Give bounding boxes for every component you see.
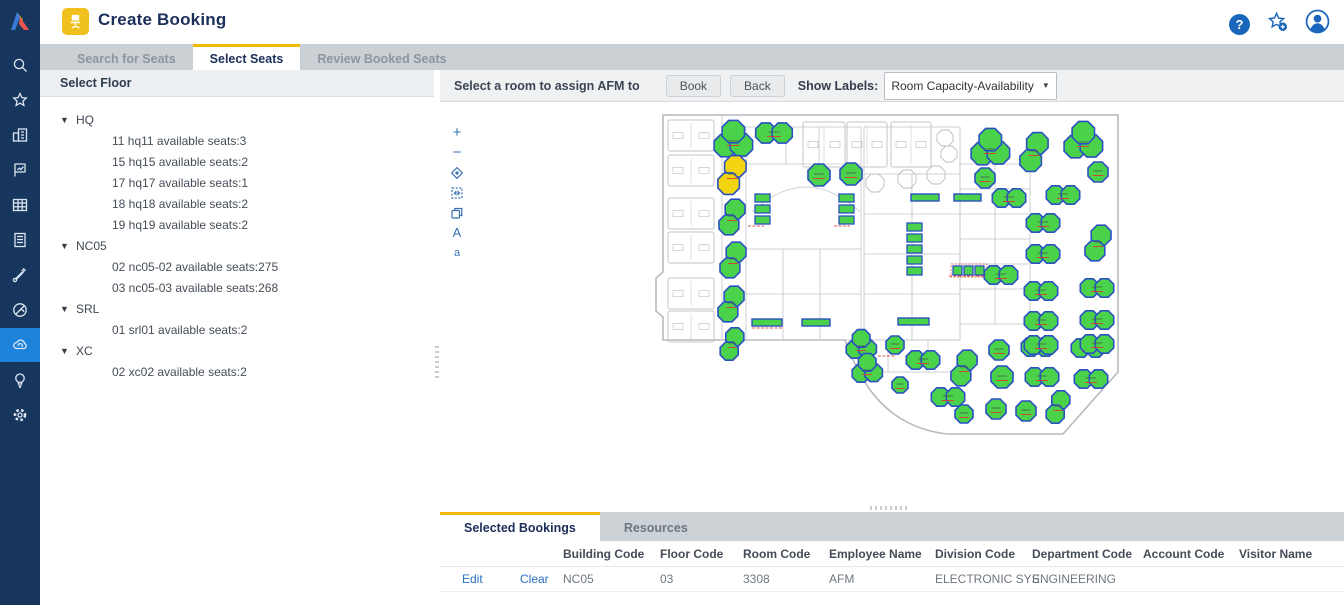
horizontal-splitter-grip[interactable] [870,506,910,510]
tree-floor-item[interactable]: 15 hq15 available seats:2 [60,151,434,172]
map-room-available[interactable] [1046,391,1070,423]
map-room-available[interactable] [808,164,830,186]
tree-group-label: XC [76,344,93,358]
rail-item-sustainability[interactable] [0,293,40,327]
space-grid-icon [11,196,29,214]
user-avatar[interactable] [1305,9,1330,39]
clear-booking-link[interactable]: Clear [498,572,555,586]
map-room-available[interactable] [802,319,830,326]
bookings-table-row: EditClearNC05033308AFMELECTRONIC SYS.ENG… [440,567,1344,592]
cubicle-outline [668,232,714,263]
sustainability-icon [11,301,29,319]
rail-item-settings[interactable] [0,398,40,432]
center-map-icon[interactable] [448,164,466,181]
map-room-available[interactable] [911,194,939,201]
show-labels-select[interactable]: Room Capacity-Availability ▼ [884,72,1056,100]
booking-cell: 3308 [735,572,821,586]
cubicle-outline [668,155,714,186]
favorites-icon [11,91,29,109]
cubicle-outline [891,122,931,167]
tab-review-booked-seats[interactable]: Review Booked Seats [300,44,463,70]
bookings-table-header: Building CodeFloor CodeRoom CodeEmployee… [440,541,1344,567]
tree-group-label: NC05 [76,239,107,253]
tab-select-seats[interactable]: Select Seats [193,44,301,70]
cubicle-outline [847,122,887,167]
booking-steps-tabbar: Search for SeatsSelect SeatsReview Booke… [40,44,1344,70]
floor-plan-drawing[interactable] [648,104,1128,449]
settings-icon [11,406,29,424]
tree-floor-item[interactable]: 19 hq19 available seats:2 [60,214,434,235]
column-header: Building Code [555,547,652,561]
tree-group-srl[interactable]: ▼SRL [60,298,434,319]
map-instruction: Select a room to assign AFM to [454,79,640,93]
map-room-available[interactable] [755,194,770,224]
app-header: Create Booking ? [40,0,1344,44]
tree-floor-item[interactable]: 02 nc05-02 available seats:275 [60,256,434,277]
rail-item-tools[interactable] [0,258,40,292]
create-booking-app: Create Booking ? Search for SeatsS [0,0,1344,605]
page-title: Create Booking [98,10,226,30]
tree-floor-item[interactable]: 11 hq11 available seats:3 [60,130,434,151]
book-button[interactable]: Book [666,75,721,97]
workplace-cloud-icon [11,336,29,354]
column-header: Employee Name [821,547,927,561]
map-room-available[interactable] [971,128,1010,164]
add-favorite-icon[interactable] [1266,10,1289,38]
tree-group-xc[interactable]: ▼XC [60,340,434,361]
map-room-available[interactable] [898,318,929,325]
rail-item-buildings[interactable] [0,118,40,152]
fit-extent-icon[interactable] [448,184,466,201]
map-room-available[interactable] [1064,121,1103,157]
rail-item-documents[interactable] [0,223,40,257]
rail-item-space-grid[interactable] [0,188,40,222]
map-room-available[interactable] [1085,225,1111,261]
column-header: Visitor Name [1231,547,1344,561]
map-room-available[interactable] [1024,336,1057,354]
help-icon[interactable]: ? [1229,14,1250,35]
tree-collapse-icon[interactable]: ▼ [60,241,76,251]
bookings-tabbar: Selected BookingsResources [440,512,1344,541]
layers-icon[interactable] [448,204,466,221]
map-tools: + − A a [448,124,466,261]
map-room-available[interactable] [951,264,987,277]
map-room-available[interactable] [1026,245,1059,263]
map-room-available[interactable] [1026,214,1059,232]
floor-plan-canvas[interactable]: + − A a [440,102,1344,511]
unassigned-hex-table [927,166,945,184]
buildings-icon [11,126,29,144]
chevron-down-icon: ▼ [1042,81,1050,90]
map-room-available[interactable] [1020,133,1048,172]
map-room-available[interactable] [719,199,745,235]
show-labels-value: Room Capacity-Availability [891,79,1034,93]
tree-collapse-icon[interactable]: ▼ [60,346,76,356]
documents-icon [11,231,29,249]
zoom-in-icon[interactable]: + [448,124,466,141]
map-room-available[interactable] [955,405,973,423]
unassigned-hex-table [866,174,884,192]
map-room-available[interactable] [1025,368,1058,386]
splitter-grip[interactable] [435,346,439,380]
cubicle-outline [668,311,714,342]
unassigned-hex-table [941,146,957,162]
tree-floor-item[interactable]: 17 hq17 available seats:1 [60,172,434,193]
tree-collapse-icon[interactable]: ▼ [60,115,76,125]
column-header: Room Code [735,547,821,561]
tree-floor-item[interactable]: 03 nc05-03 available seats:268 [60,277,434,298]
booking-cell: NC05 [555,572,652,586]
archibus-logo[interactable] [7,8,33,34]
rail-item-report-flag[interactable] [0,153,40,187]
text-larger-icon[interactable]: A [448,224,466,241]
map-room-available[interactable] [886,336,904,354]
tree-floor-item[interactable]: 01 srl01 available seats:2 [60,319,434,340]
booking-cell: ELECTRONIC SYS. [927,572,1024,586]
tree-group-hq[interactable]: ▼HQ [60,109,434,130]
tree-group-nc05[interactable]: ▼NC05 [60,235,434,256]
rail-item-favorites[interactable] [0,83,40,117]
column-header: Division Code [927,547,1024,561]
map-room-available[interactable] [975,168,995,188]
tree-group-label: SRL [76,302,99,316]
tools-icon [11,266,29,284]
map-room-available[interactable] [951,350,977,386]
map-room-available[interactable] [986,399,1006,419]
tree-collapse-icon[interactable]: ▼ [60,304,76,314]
floor-plan-panel: Select a room to assign AFM to Book Back… [440,70,1344,512]
map-toolbar: Select a room to assign AFM to Book Back… [440,70,1344,102]
map-room-available[interactable] [1080,311,1113,329]
rail-item-workplace-cloud[interactable] [0,328,40,362]
report-flag-icon [11,161,29,179]
map-room-available[interactable] [954,194,981,201]
select-floor-panel-title: Select Floor [40,70,434,97]
column-header: Account Code [1135,547,1231,561]
map-room-available[interactable] [931,388,964,406]
map-room-available[interactable] [906,351,939,369]
map-room-available[interactable] [892,377,908,393]
text-smaller-icon[interactable]: a [448,244,466,261]
zoom-out-icon[interactable]: − [448,144,466,161]
map-room-available[interactable] [720,328,744,360]
map-room-available[interactable] [1080,335,1113,353]
column-header: Floor Code [652,547,735,561]
map-room-available[interactable] [907,223,922,275]
map-room-available[interactable] [991,366,1013,388]
ideas-icon [11,371,29,389]
tree-group-label: HQ [76,113,94,127]
cubicle-outline [668,120,714,151]
column-header: Department Code [1024,547,1135,561]
map-room-available[interactable] [1074,370,1107,388]
search-icon [11,56,29,74]
unassigned-hex-table [937,130,953,146]
cubicle-outline [668,278,714,309]
map-room-available[interactable] [1080,279,1113,297]
bottom-tab-resources[interactable]: Resources [600,512,712,541]
select-floor-panel: Select Floor ▼HQ11 hq11 available seats:… [40,70,434,605]
edit-booking-link[interactable]: Edit [440,572,498,586]
rail-item-search[interactable] [0,48,40,82]
map-room-available[interactable] [714,120,753,156]
map-room-available[interactable] [840,163,862,185]
tab-search-for-seats[interactable]: Search for Seats [60,44,193,70]
bottom-tab-selected-bookings[interactable]: Selected Bookings [440,512,600,541]
map-room-available[interactable] [1024,312,1057,330]
unassigned-hex-table [898,170,916,188]
tree-floor-item[interactable]: 18 hq18 available seats:2 [60,193,434,214]
map-room-available[interactable] [1024,282,1057,300]
booking-cell: ENGINEERING [1024,572,1135,586]
cubicle-outline [803,122,845,167]
bookings-panel: Selected BookingsResources Building Code… [440,512,1344,605]
rail-item-ideas[interactable] [0,363,40,397]
map-room-available[interactable] [752,319,782,326]
map-room-available[interactable] [1016,401,1036,421]
cubicle-outline [668,198,714,229]
back-button[interactable]: Back [730,75,785,97]
map-room-available[interactable] [984,266,1017,284]
map-room-available[interactable] [720,242,746,278]
map-room-available[interactable] [756,123,793,143]
show-labels-label: Show Labels: [798,79,879,93]
booking-cell: AFM [821,572,927,586]
booking-cell: 03 [652,572,735,586]
booking-chair-icon [62,8,89,35]
map-room-available[interactable] [989,340,1009,360]
floor-tree: ▼HQ11 hq11 available seats:315 hq15 avai… [40,97,434,382]
map-room-available[interactable] [1088,162,1108,182]
map-room-available[interactable] [839,194,854,224]
tree-floor-item[interactable]: 02 xc02 available seats:2 [60,361,434,382]
map-room-available[interactable] [992,189,1025,207]
map-room-available[interactable] [1046,186,1079,204]
left-nav-rail [0,0,40,605]
